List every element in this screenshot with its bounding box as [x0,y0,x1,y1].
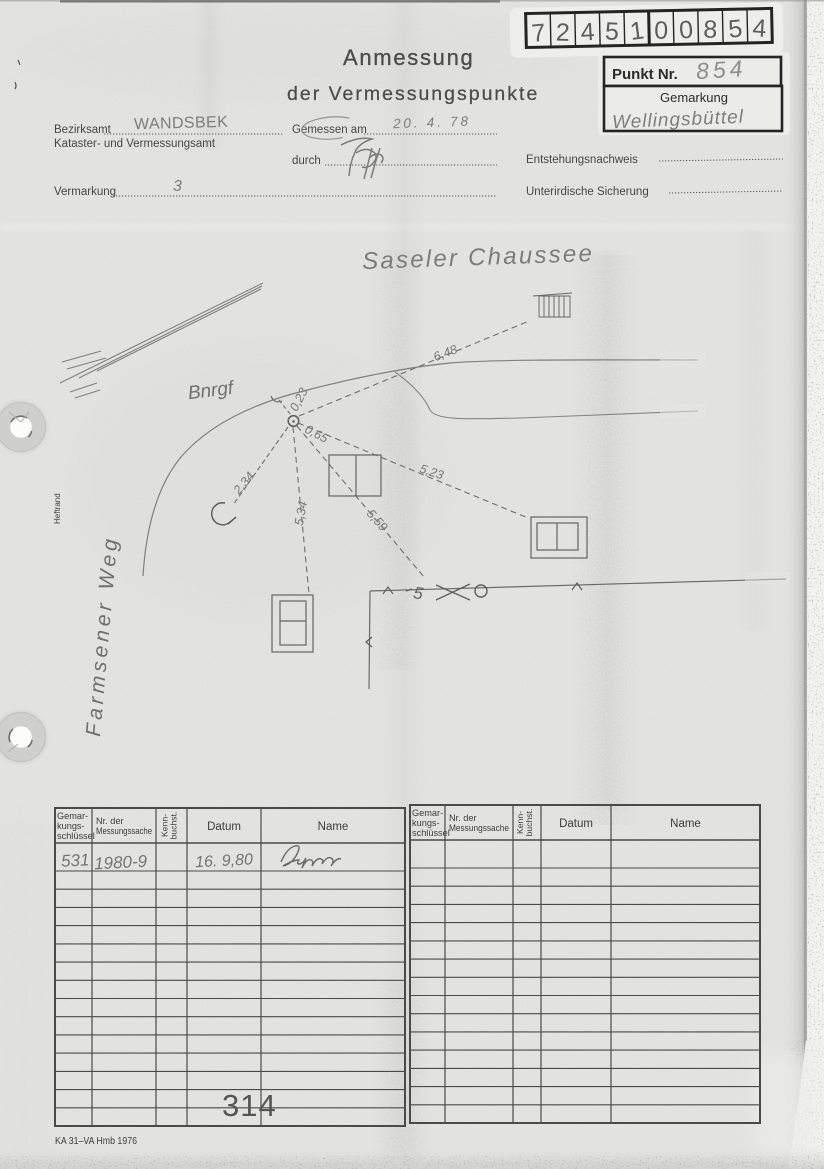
svg-text:20. 4. 78: 20. 4. 78 [392,114,471,132]
svg-text:854: 854 [695,55,747,84]
svg-text:Bezirksamt: Bezirksamt [54,124,112,136]
svg-text:durch: durch [292,155,321,167]
svg-text:Heftrand: Heftrand [53,493,62,524]
svg-text:314: 314 [222,1088,277,1123]
svg-text:Gemarkung: Gemarkung [660,90,728,105]
svg-text:der Vermessungspunkte: der Vermessungspunkte [287,83,539,105]
svg-text:7: 7 [530,19,546,48]
svg-text:KA 31–VA Hmb 1976: KA 31–VA Hmb 1976 [55,1135,137,1147]
svg-text:Gemar-: Gemar- [412,808,443,818]
svg-text:4: 4 [752,14,768,43]
svg-text:Nr. der: Nr. der [96,816,124,826]
svg-text:Vermarkung: Vermarkung [54,186,116,198]
svg-text:5: 5 [727,15,743,44]
svg-text:0: 0 [678,16,694,45]
svg-text:Kataster- und Vermessungsamt: Kataster- und Vermessungsamt [54,138,216,150]
svg-text:0: 0 [654,17,668,45]
svg-text:buchst.: buchst. [169,812,179,840]
svg-text:2: 2 [555,19,570,47]
svg-text:WANDSBEK: WANDSBEK [134,114,229,133]
svg-text:531: 531 [61,850,90,870]
svg-text:Datum: Datum [207,821,241,833]
svg-text:Name: Name [318,821,349,833]
svg-text:3: 3 [173,178,182,195]
svg-text:8: 8 [703,15,718,43]
svg-text:Nr. der: Nr. der [449,813,477,823]
svg-text:kungs-: kungs- [412,818,440,828]
svg-text:schlüssel: schlüssel [57,831,95,841]
svg-text:Name: Name [670,818,701,830]
svg-text:kungs-: kungs- [57,821,85,831]
svg-text:Datum: Datum [559,818,593,830]
svg-text:Messungssache: Messungssache [96,826,152,836]
svg-text:Unterirdische Sicherung: Unterirdische Sicherung [526,186,649,198]
svg-text:4: 4 [580,18,596,47]
svg-text:1980-9: 1980-9 [94,852,148,874]
svg-text:schlüssel: schlüssel [412,828,450,838]
svg-text:Gemar-: Gemar- [57,811,88,821]
svg-text:5: 5 [604,17,619,46]
svg-text:buchst.: buchst. [524,809,534,837]
svg-text:Entstehungsnachweis: Entstehungsnachweis [526,154,638,166]
svg-text:Messungssache: Messungssache [449,823,509,833]
svg-text:16. 9,80: 16. 9,80 [195,851,254,871]
svg-text:Anmessung: Anmessung [343,45,474,70]
svg-text:Punkt Nr.: Punkt Nr. [612,66,678,83]
